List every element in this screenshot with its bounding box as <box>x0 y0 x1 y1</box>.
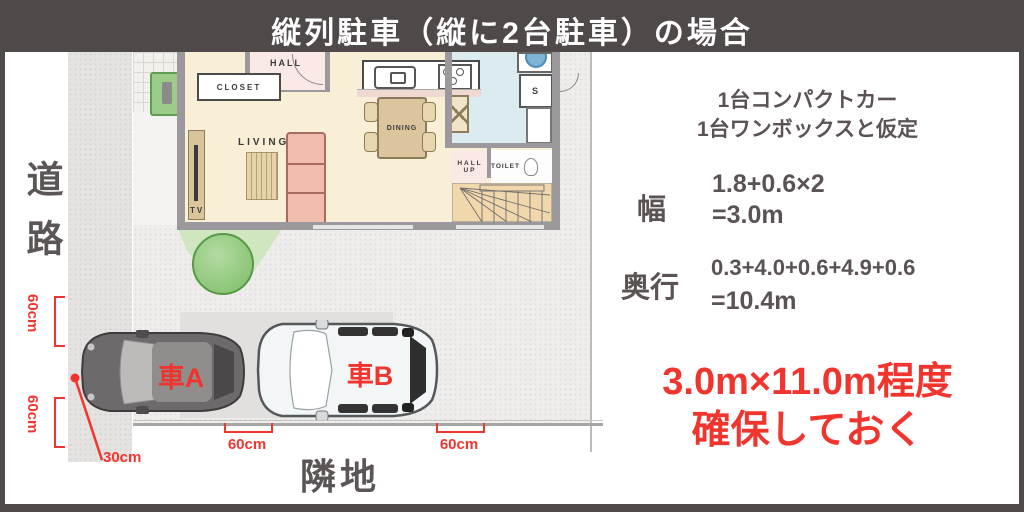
property-boundary-right <box>590 52 592 452</box>
dimension-bracket <box>436 423 485 433</box>
dimension-front-offset: 30cm <box>103 449 141 466</box>
chair-icon <box>422 132 436 152</box>
dimension-left-top: 60cm <box>24 294 41 332</box>
conclusion-line2: 確保しておく <box>610 399 1005 455</box>
up-label: UP <box>463 167 476 174</box>
interior-wall <box>445 52 452 148</box>
stairs-icon <box>452 183 552 222</box>
sofa-icon <box>286 132 326 226</box>
property-boundary-bottom <box>133 423 603 426</box>
dimension-left-bottom: 60cm <box>24 395 41 433</box>
toilet-room: TOILET <box>491 150 552 183</box>
cabinet-icon <box>449 95 469 133</box>
rug-icon <box>246 152 278 200</box>
sink-icon <box>374 66 416 89</box>
depth-result: =10.4m <box>711 287 797 316</box>
chair-icon <box>364 102 378 122</box>
depth-label: 奥行 <box>621 264 679 306</box>
page-title: 縦列駐車（縦に2台駐車）の場合 <box>0 8 1024 52</box>
depth-formula: 0.3+4.0+0.6+4.9+0.6 <box>711 255 915 281</box>
dining-table: DINING <box>377 97 427 159</box>
property-boundary-bottom-inner <box>133 420 603 421</box>
washer-drum-icon <box>525 52 547 68</box>
interior-wall <box>445 143 560 148</box>
assumption-line1: 1台コンパクトカー <box>620 84 995 114</box>
car-a-label: 車A <box>146 356 216 395</box>
stove-icon <box>438 64 472 90</box>
storage-room: S <box>519 74 553 108</box>
neighbor-label: 隣地 <box>250 448 430 500</box>
conclusion-line1: 3.0m×11.0m程度 <box>610 350 1005 405</box>
tv-label: TV <box>190 206 204 215</box>
tree-icon <box>192 233 254 295</box>
dimension-bracket <box>224 423 273 433</box>
sofa-cushion-line <box>288 163 324 165</box>
width-label: 幅 <box>637 186 666 228</box>
dimension-bracket <box>54 296 65 347</box>
hall2-label: HALL <box>457 160 482 167</box>
dimension-gap-behind: 60cm <box>429 436 489 453</box>
interior-wall <box>487 148 491 178</box>
dining-label: DINING <box>387 125 418 132</box>
burner-icon <box>456 68 464 76</box>
closet-label: CLOSET <box>217 83 261 92</box>
window-icon <box>455 224 545 230</box>
sofa-cushion-line <box>288 192 324 194</box>
approach-path <box>133 112 178 225</box>
chair-icon <box>422 102 436 122</box>
house-wall-left <box>177 52 185 230</box>
tv-icon <box>194 145 198 201</box>
storage-label: S <box>532 86 540 96</box>
infographic-canvas: 縦列駐車（縦に2台駐車）の場合 HALL CLOSET DINING <box>0 0 1024 512</box>
width-formula: 1.8+0.6×2 <box>712 170 825 199</box>
living-label: LIVING <box>238 137 289 148</box>
window-icon <box>312 224 414 230</box>
hall-up-room: HALL UP <box>452 150 488 184</box>
width-result: =3.0m <box>712 201 784 230</box>
toilet-icon <box>524 158 538 176</box>
closet-box: CLOSET <box>197 73 281 101</box>
planter-stone <box>162 82 172 104</box>
washing-machine-icon <box>517 52 553 73</box>
chair-icon <box>364 132 378 152</box>
assumption-line2: 1台ワンボックスと仮定 <box>620 113 995 143</box>
road-label: 道路 <box>14 160 68 278</box>
car-b-label: 車B <box>330 354 410 393</box>
hall-door-arc <box>292 54 323 85</box>
house-wall-right <box>552 52 560 230</box>
toilet-label: TOILET <box>491 163 520 170</box>
bath-fixture <box>526 107 552 144</box>
faucet-icon <box>390 72 406 84</box>
